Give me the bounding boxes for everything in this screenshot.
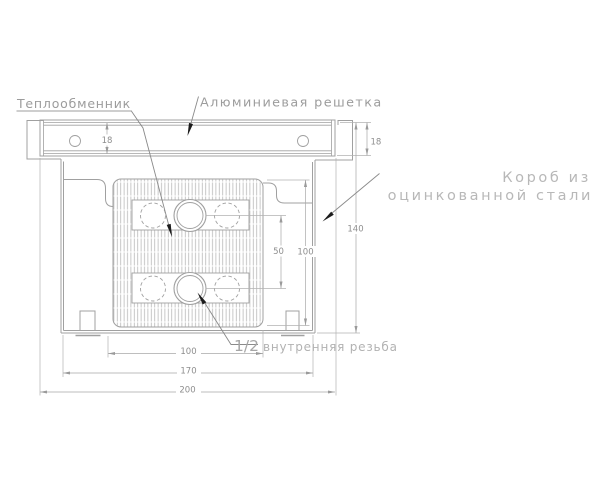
- box-left-foot: [80, 311, 95, 331]
- label-heat-exchanger: Теплообменник: [16, 96, 131, 111]
- technical-drawing-convector: 18 50 100 140 18 100 170 200 Теплообменн…: [0, 0, 600, 480]
- leader-aluminum-grille: [191, 97, 199, 126]
- dim-grille-height-left: 18: [102, 136, 113, 146]
- dim-exchanger-height: 100: [297, 248, 313, 258]
- box-left-shoulder: [64, 180, 114, 207]
- pipe-connection-upper-outer: [174, 200, 206, 232]
- label-thread-text: внутренняя резьба: [263, 340, 398, 354]
- dim-exchanger-width: 100: [180, 347, 196, 357]
- label-steel-box-line1: Короб из: [502, 170, 591, 186]
- grille-face-lines: [44, 120, 332, 156]
- label-steel-box-line2: оцинкованной стали: [388, 188, 593, 204]
- box-right-foot: [286, 311, 299, 331]
- label-aluminum-grille: Алюминиевая решетка: [200, 96, 383, 111]
- box-bottom: [61, 331, 315, 334]
- dim-box-width: 170: [180, 367, 196, 377]
- heat-exchanger: [113, 179, 263, 327]
- box-left-wall: [61, 159, 64, 333]
- label-thread-size: 1/2: [234, 337, 259, 355]
- grille-screw-hole-left: [70, 136, 81, 147]
- dim-total-width: 200: [179, 386, 195, 396]
- arrow-steel-box: [323, 212, 334, 222]
- dim-grille-height-right: 18: [371, 138, 382, 148]
- box-right-lip: [315, 121, 353, 161]
- dim-total-height: 140: [347, 225, 363, 235]
- aluminum-grille: [40, 120, 335, 156]
- dim-pipe-spacing: 50: [273, 247, 284, 257]
- callout-labels: Теплообменник Алюминиевая решетка Короб …: [16, 96, 593, 356]
- grille-screw-hole-right: [298, 136, 309, 147]
